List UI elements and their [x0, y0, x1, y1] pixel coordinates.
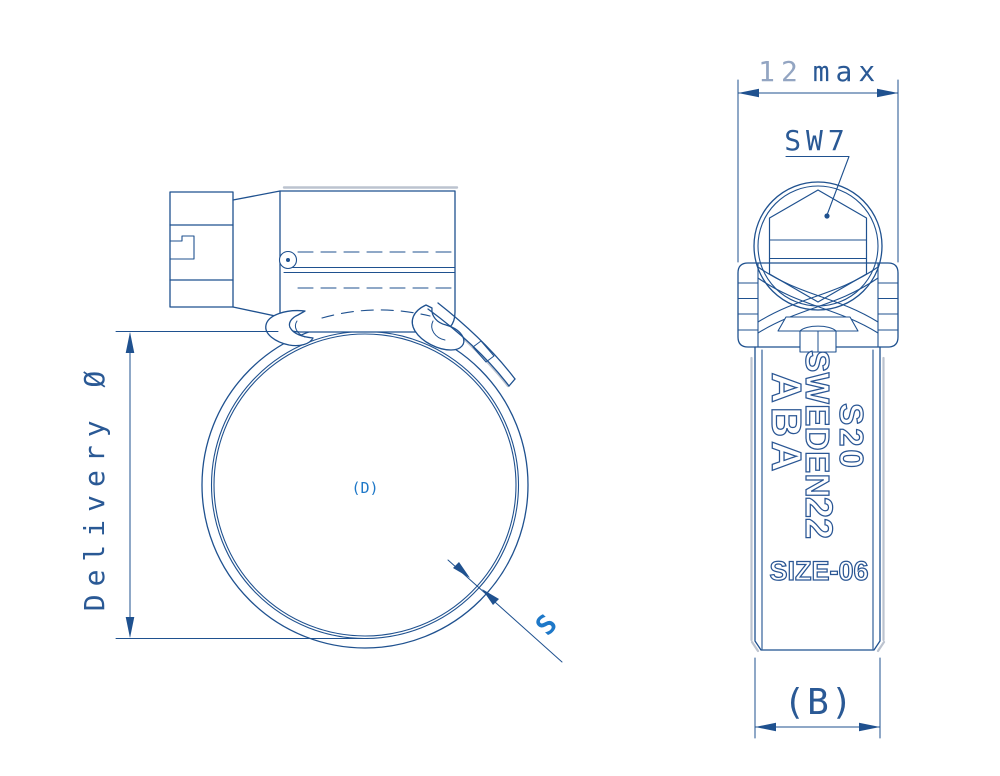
housing-band-exit [778, 317, 858, 331]
inner-diameter-ref-label: (D) [351, 479, 378, 497]
side-view [116, 188, 562, 663]
band-thickness-label: S [530, 609, 564, 642]
width-suffix-label: max [813, 55, 882, 88]
width-value-label: 12 [758, 55, 804, 88]
band-marking-size-code: SIZE-06 [769, 556, 868, 586]
band-marking-series: S20 [833, 403, 870, 471]
width-dimension [738, 80, 898, 262]
clamp-drawing: Delivery Ø (D) S [0, 0, 1000, 776]
drawing-canvas: Delivery Ø (D) S [0, 0, 1000, 776]
arrow-left-icon [755, 723, 776, 732]
hex-key-label: SW7 [784, 124, 850, 157]
arrow-left-icon [738, 89, 759, 98]
arrow-right-icon [859, 723, 880, 732]
arrow-nw-icon [482, 589, 499, 605]
hex-key-leader [786, 157, 849, 219]
leader-dot-icon [824, 213, 829, 218]
band-marking-country: SWEDEN [799, 350, 836, 498]
arrow-se-icon [453, 562, 470, 578]
delivery-diameter-label: Delivery Ø [78, 363, 111, 612]
hex-socket [770, 190, 867, 302]
band-marking-size-number: 22 [797, 497, 839, 539]
screw-head-front [754, 182, 882, 310]
screw-head-side [170, 191, 280, 317]
arrow-right-icon [877, 89, 898, 98]
arrow-up-icon [126, 332, 135, 353]
arrow-down-icon [126, 617, 135, 638]
band-width-ref-label: (B) [783, 682, 854, 723]
band-thickness-dimension [448, 560, 562, 662]
